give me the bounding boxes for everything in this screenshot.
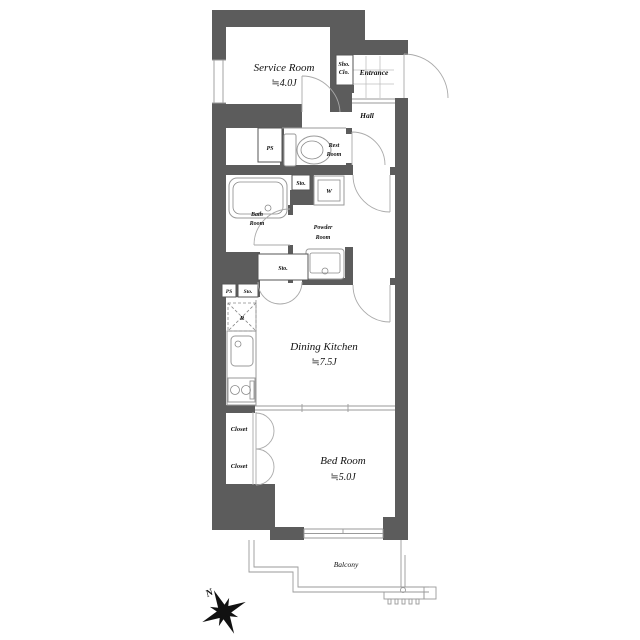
entrance-label: Entrance — [359, 68, 389, 77]
hall-label: Hall — [359, 111, 375, 120]
compass-rose: N — [192, 580, 256, 640]
wall-bottom-left — [270, 527, 304, 540]
refrigerator-label: R — [239, 315, 245, 322]
balcony-grate — [384, 587, 436, 604]
entrance-door — [404, 54, 448, 98]
balcony-outline — [249, 540, 436, 604]
wall-left-upper — [212, 27, 226, 60]
wall-below-bath — [226, 252, 260, 280]
powder-room-label-2: Room — [315, 235, 331, 241]
storage-mid-label: Sto. — [278, 266, 288, 272]
dining-kitchen-label: Dining Kitchen — [289, 341, 358, 353]
hall-floor — [352, 88, 395, 175]
closet-floor — [226, 412, 253, 484]
wall-dk-closet — [222, 405, 255, 413]
wall-dk-door-stub — [390, 278, 395, 285]
powder-room-label-1: Powder — [314, 225, 333, 231]
wall-powder-door-stub — [390, 167, 395, 175]
closet-upper-label: Closet — [231, 426, 248, 433]
wall-shoecloset-bottom — [336, 85, 354, 93]
bath-room-label-2: Room — [249, 221, 265, 227]
shoe-closet-label-1: Sho. — [338, 62, 350, 68]
bath-room-label-1: Bath — [250, 212, 264, 218]
balcony-label: Balcony — [334, 560, 359, 569]
pipe-space-upper-box — [258, 128, 282, 162]
kitchen-sink — [231, 336, 253, 366]
storage-lower-label: Sto. — [244, 289, 253, 295]
wall-right-main — [395, 98, 408, 520]
closet-lower-label: Closet — [231, 463, 248, 470]
shoe-closet-label-2: Clo. — [339, 70, 350, 76]
ps-lower-label: PS — [226, 289, 232, 295]
ps-upper-label: PS — [266, 146, 274, 152]
wall-below-sto-upper — [290, 190, 312, 205]
wall-above-ps — [258, 112, 302, 128]
shower-basin-fixture — [306, 249, 344, 279]
rest-room-label-1: Rest — [328, 143, 340, 149]
wall-top — [212, 10, 365, 27]
wall-serviceroom-door-stub — [340, 104, 352, 112]
dining-kitchen-size: ≒7.5J — [311, 357, 337, 368]
toilet-fixture — [284, 134, 331, 166]
bedroom-window — [304, 529, 383, 538]
wall-sw-block — [212, 484, 275, 530]
wall-entrance-top — [350, 40, 408, 55]
rest-room-label-2: Room — [326, 152, 342, 158]
storage-upper-label: Sto. — [296, 181, 306, 187]
bed-room-size: ≒5.0J — [330, 472, 356, 483]
service-room-label: Service Room — [254, 62, 315, 74]
compass-north-label: N — [203, 587, 216, 601]
service-room-window — [212, 60, 226, 103]
wall-restroom-right-top — [346, 128, 352, 134]
floor-plan-canvas: N Service Room ≒4.0J Sho. Clo. Entrance … — [0, 0, 640, 640]
wall-se-block — [383, 517, 408, 540]
bed-room-label: Bed Room — [320, 455, 366, 467]
wall-bath-right-top — [288, 205, 293, 215]
wall-left-main — [212, 103, 226, 530]
wall-serviceroom-right — [330, 53, 336, 112]
service-room-size: ≒4.0J — [271, 78, 297, 89]
floor-plan-drawing: N Service Room ≒4.0J Sho. Clo. Entrance … — [0, 0, 640, 640]
